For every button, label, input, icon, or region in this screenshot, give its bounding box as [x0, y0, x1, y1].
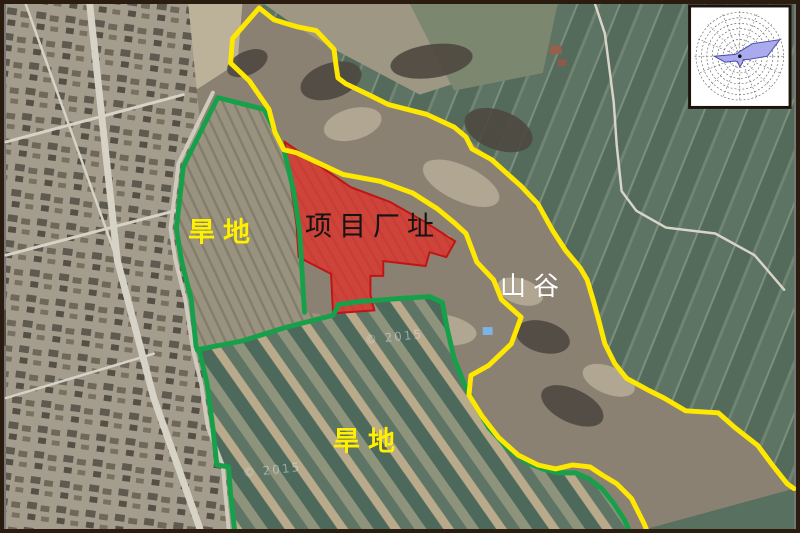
satellite-map-figure: 旱地 项目厂址 山谷 旱地 © 2015 © 2015: [0, 0, 800, 533]
wind-rose: [690, 6, 790, 107]
blue-roof-structure: [483, 327, 493, 335]
label-valley: 山谷: [500, 274, 566, 300]
label-dryland-bottom: 旱地: [333, 429, 403, 456]
label-dryland-top: 旱地: [188, 220, 258, 247]
wind-rose-center: [738, 54, 742, 58]
farm-shed: [558, 59, 567, 66]
farm-house: [550, 45, 562, 54]
label-project-site: 项目厂址: [305, 214, 441, 241]
